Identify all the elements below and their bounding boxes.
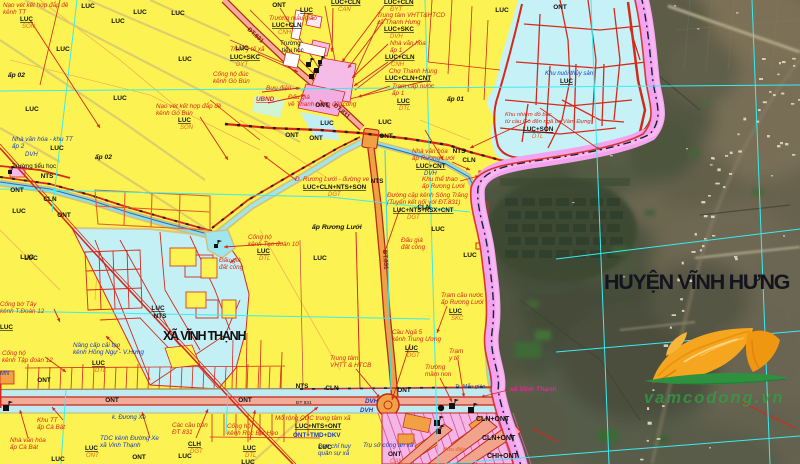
svg-text:LUC+CLN+CNT: LUC+CLN+CNT (385, 75, 431, 82)
svg-text:Tr. Mẫu giáo: Tr. Mẫu giáo (455, 383, 485, 390)
svg-text:ONT: ONT (238, 397, 252, 404)
svg-text:Nhà văn hóa: Nhà văn hóa (390, 40, 426, 47)
svg-text:ấp Rương Lưới: ấp Rương Lưới (422, 182, 465, 190)
svg-text:DTL: DTL (95, 368, 106, 374)
svg-text:Khu nhiễm đồ bạc: Khu nhiễm đồ bạc (505, 111, 552, 118)
svg-text:ONT: ONT (10, 187, 24, 194)
svg-text:kênh Hồng Ngự - V.Hưng: kênh Hồng Ngự - V.Hưng (73, 347, 144, 356)
svg-text:Đấu giá: Đấu giá (219, 256, 241, 264)
svg-text:LUC: LUC (463, 252, 477, 259)
svg-text:Cống hộ: Cống hộ (248, 233, 272, 241)
svg-text:ĐT.831: ĐT.831 (381, 250, 389, 271)
svg-text:đất công: đất công (219, 263, 244, 271)
svg-text:Cống hộ đúc: Cống hộ đúc (213, 70, 250, 78)
svg-text:Cống hộ: Cống hộ (227, 422, 251, 430)
svg-text:XÃ VĨNH THẠNH: XÃ VĨNH THẠNH (163, 328, 247, 343)
svg-text:CLN+ONT: CLN+ONT (482, 435, 516, 442)
svg-text:HUYỆN VĨNH HƯNG: HUYỆN VĨNH HƯNG (604, 269, 792, 294)
svg-text:VHTT & HTCB: VHTT & HTCB (330, 362, 371, 369)
svg-text:ấp Rương Lưới: ấp Rương Lưới (441, 298, 484, 306)
svg-text:ONT: ONT (309, 135, 323, 142)
svg-text:đất công: đất công (401, 243, 426, 251)
svg-text:NTS: NTS (453, 148, 467, 155)
svg-text:CLN+ONT: CLN+ONT (476, 416, 510, 423)
svg-text:LUC: LUC (241, 459, 255, 464)
svg-text:Đ. Rương Lưới - đường ve: Đ. Rương Lưới - đường ve (295, 176, 370, 183)
svg-text:CNH: CNH (278, 30, 292, 36)
svg-text:LUC: LUC (151, 305, 165, 312)
svg-text:ONT: ONT (57, 212, 71, 219)
svg-text:CAN: CAN (390, 459, 403, 464)
svg-text:CAN: CAN (338, 7, 351, 13)
svg-text:Nâng cấp cải tạo: Nâng cấp cải tạo (73, 341, 121, 349)
svg-text:Trường: Trường (280, 40, 301, 47)
svg-text:ONT: ONT (379, 133, 393, 140)
svg-text:NTS: NTS (371, 178, 385, 185)
svg-text:xã Vĩnh Thạnh: xã Vĩnh Thạnh (509, 386, 556, 393)
svg-text:LUC: LUC (50, 145, 64, 152)
svg-text:ONT: ONT (285, 132, 299, 139)
svg-text:LUC: LUC (51, 456, 65, 463)
svg-text:CLN: CLN (417, 204, 431, 211)
svg-text:ấp 2: ấp 2 (12, 142, 25, 150)
svg-text:ONT: ONT (37, 377, 51, 384)
svg-text:Khu nuôi thủy sản: Khu nuôi thủy sản (545, 70, 594, 77)
svg-text:Trung tâm: Trung tâm (330, 355, 358, 362)
svg-text:LUC: LUC (178, 56, 192, 63)
svg-text:NTS: NTS (41, 173, 55, 180)
svg-text:mầm non: mầm non (425, 369, 452, 378)
svg-text:kênh Trung Ương: kênh Trung Ương (392, 336, 441, 343)
svg-text:Khu thể thao: Khu thể thao (422, 175, 458, 183)
svg-text:Trạm: Trạm (449, 348, 463, 355)
svg-text:LUC: LUC (300, 7, 313, 14)
svg-text:DTL: DTL (532, 134, 543, 140)
svg-text:LUC: LUC (12, 208, 26, 215)
svg-text:Đấu giá: Đấu giá (288, 93, 310, 101)
svg-text:ấp Cà Bát: ấp Cà Bát (10, 443, 38, 451)
svg-text:LUC: LUC (0, 324, 13, 331)
svg-text:ONT: ONT (272, 2, 286, 9)
svg-text:LUC: LUC (378, 119, 392, 126)
svg-text:ấp 1: ấp 1 (390, 46, 402, 54)
svg-text:LUC+SKC: LUC+SKC (384, 26, 414, 33)
svg-text:DTL: DTL (399, 106, 410, 112)
svg-text:ấp Rương Lưới: ấp Rương Lưới (312, 223, 362, 231)
svg-text:Cống hộ: Cống hộ (2, 349, 26, 357)
svg-text:Trạm cầu nước: Trạm cầu nước (441, 290, 484, 299)
svg-text:Trạm cấp nước: Trạm cấp nước (392, 82, 435, 90)
svg-text:tiểu học: tiểu học (282, 47, 304, 54)
svg-text:Bưu điện: Bưu điện (443, 447, 466, 453)
svg-text:vamcodong.vn: vamcodong.vn (644, 389, 784, 407)
svg-text:CLN: CLN (462, 157, 476, 164)
svg-text:LUC: LUC (178, 453, 192, 460)
svg-text:CHI+ONT: CHI+ONT (487, 453, 519, 460)
svg-text:LUC: LUC (133, 9, 147, 16)
svg-text:quân sự xã: quân sự xã (318, 450, 350, 457)
svg-text:NTS: NTS (296, 383, 310, 390)
svg-text:LUC: LUC (235, 45, 249, 52)
svg-text:ấp 02: ấp 02 (95, 153, 112, 161)
svg-text:ONT: ONT (86, 453, 100, 459)
svg-text:Nhà văn hóa: Nhà văn hóa (412, 148, 448, 155)
svg-text:Trung tâm VHTT&HTCD: Trung tâm VHTT&HTCD (377, 12, 446, 19)
svg-text:Đấu giá: Đấu giá (401, 236, 423, 244)
svg-text:ONT: ONT (315, 102, 329, 109)
svg-text:Nhà văn hóa - khu TT: Nhà văn hóa - khu TT (12, 136, 74, 143)
svg-text:LUC: LUC (171, 10, 185, 17)
svg-text:DGT: DGT (190, 449, 204, 455)
svg-text:Nạo vét kết hợp đắp đê: Nạo vét kết hợp đắp đê (156, 101, 222, 110)
svg-text:DGT: DGT (407, 353, 421, 359)
svg-text:xã Vinh Thạnh: xã Vinh Thạnh (99, 442, 141, 449)
svg-text:MN: MN (0, 371, 10, 377)
svg-text:Nạo vét kết hợp đắp đê: Nạo vét kết hợp đắp đê (3, 0, 69, 9)
svg-text:Trụ sở công an xã: Trụ sở công an xã (363, 441, 414, 449)
svg-text:DGT: DGT (407, 215, 421, 221)
svg-text:LUC: LUC (113, 95, 127, 102)
svg-text:LUC: LUC (431, 226, 445, 233)
svg-text:Bưu điện: Bưu điện (266, 85, 292, 92)
svg-text:Mở rộng CDC trung tâm xã: Mở rộng CDC trung tâm xã (275, 414, 351, 422)
svg-text:LUC: LUC (320, 120, 334, 127)
svg-text:CLN: CLN (325, 385, 339, 392)
svg-text:LUC+CLN: LUC+CLN (331, 0, 361, 6)
svg-text:LUC: LUC (111, 18, 125, 25)
svg-text:ĐT 831: ĐT 831 (172, 429, 193, 436)
svg-text:DGT: DGT (328, 192, 342, 198)
svg-text:LUC: LUC (560, 78, 573, 85)
svg-text:ấp Rương Lưới: ấp Rương Lưới (412, 154, 455, 162)
svg-text:Nhà văn hóa: Nhà văn hóa (10, 437, 46, 444)
svg-text:kênh Gò Bún: kênh Gò Bún (213, 78, 250, 85)
svg-text:LUC: LUC (313, 255, 327, 262)
svg-text:Khu TT: Khu TT (37, 417, 59, 424)
svg-text:LUC: LUC (81, 3, 95, 10)
svg-text:kênh Rọc Bát Heo: kênh Rọc Bát Heo (227, 430, 279, 437)
svg-text:LUC: LUC (20, 16, 33, 23)
svg-text:kênh Tập đoàn 12: kênh Tập đoàn 12 (2, 357, 53, 364)
svg-text:SKC: SKC (451, 316, 464, 322)
svg-text:LUC: LUC (20, 254, 34, 261)
svg-text:LUC+SKC: LUC+SKC (230, 54, 260, 61)
svg-text:TDC kênh Đường Xe: TDC kênh Đường Xe (100, 435, 159, 442)
svg-text:DYT: DYT (236, 62, 249, 68)
svg-text:ấp Cà Bật: ấp Cà Bật (37, 423, 65, 431)
svg-text:UBND: UBND (256, 96, 275, 103)
svg-text:LUC: LUC (397, 98, 410, 105)
svg-text:k. Đương Xe: k. Đương Xe (112, 415, 146, 421)
svg-text:LUC+CLN+NTS+SON: LUC+CLN+NTS+SON (303, 184, 367, 191)
svg-text:LUC+CLN: LUC+CLN (385, 54, 415, 61)
svg-text:Cầu Ngã 5: Cầu Ngã 5 (392, 327, 423, 336)
svg-text:ấp 1: ấp 1 (392, 89, 404, 97)
svg-text:NTS: NTS (302, 15, 314, 21)
svg-text:DVH: DVH (365, 398, 379, 405)
svg-text:LUC+CLN: LUC+CLN (384, 0, 414, 6)
svg-text:CLH: CLH (188, 441, 201, 448)
svg-text:ấp 01: ấp 01 (447, 95, 464, 103)
svg-text:kênh T.Đoàn 12: kênh T.Đoàn 12 (0, 308, 45, 315)
svg-text:Chợ Thanh Hùng: Chợ Thanh Hùng (389, 68, 438, 75)
svg-text:Các cầu trên: Các cầu trên (172, 420, 208, 429)
svg-text:SON: SON (22, 24, 36, 30)
svg-text:ONT: ONT (388, 451, 401, 458)
svg-text:LUC: LUC (495, 7, 509, 14)
svg-text:LUC: LUC (92, 360, 105, 367)
svg-text:LUC+CNT: LUC+CNT (416, 163, 446, 170)
svg-text:LUC: LUC (405, 345, 418, 352)
svg-text:NTS: NTS (154, 313, 168, 320)
svg-text:LUC: LUC (449, 308, 462, 315)
svg-text:LUC: LUC (25, 106, 39, 113)
svg-text:Cống bờ Tây: Cống bờ Tây (0, 300, 37, 308)
svg-text:CLN: CLN (43, 196, 57, 203)
svg-text:LUC+NTS+ONT: LUC+NTS+ONT (295, 423, 341, 430)
svg-text:y tế: y tế (448, 354, 460, 362)
svg-text:ONT: ONT (132, 454, 146, 461)
svg-text:ONT+TMD+DKV: ONT+TMD+DKV (293, 432, 341, 439)
svg-text:LUC: LUC (85, 445, 98, 452)
svg-text:kênh Tạo đoàn 10: kênh Tạo đoàn 10 (248, 241, 299, 248)
svg-text:từ cầu Gò đến ngã ba Vàm Đựng: từ cầu Gò đến ngã ba Vàm Đựng (505, 118, 591, 125)
svg-text:ONT: ONT (553, 4, 567, 11)
svg-text:ấp 02: ấp 02 (8, 71, 25, 79)
svg-text:LUC: LUC (56, 46, 70, 53)
svg-text:Trường tiểu học: Trường tiểu học (12, 163, 56, 170)
svg-text:LUC: LUC (318, 444, 332, 451)
svg-text:LUC: LUC (257, 248, 270, 255)
svg-text:SON: SON (180, 125, 194, 131)
svg-text:Trường: Trường (425, 364, 446, 371)
svg-text:DVH: DVH (25, 152, 38, 158)
svg-text:LUC: LUC (243, 445, 256, 452)
svg-text:Đường cặp kênh Sông Trăng: Đường cặp kênh Sông Trăng (387, 192, 468, 199)
svg-text:ONT: ONT (397, 387, 411, 394)
svg-text:ĐT 831: ĐT 831 (296, 400, 312, 406)
svg-text:LUC+SON: LUC+SON (523, 126, 554, 133)
svg-text:LUC: LUC (178, 117, 191, 124)
svg-text:DTL: DTL (259, 256, 270, 262)
svg-text:ONT: ONT (105, 397, 119, 404)
svg-text:DVH: DVH (360, 407, 374, 414)
svg-text:LUC+CLN: LUC+CLN (272, 22, 302, 29)
